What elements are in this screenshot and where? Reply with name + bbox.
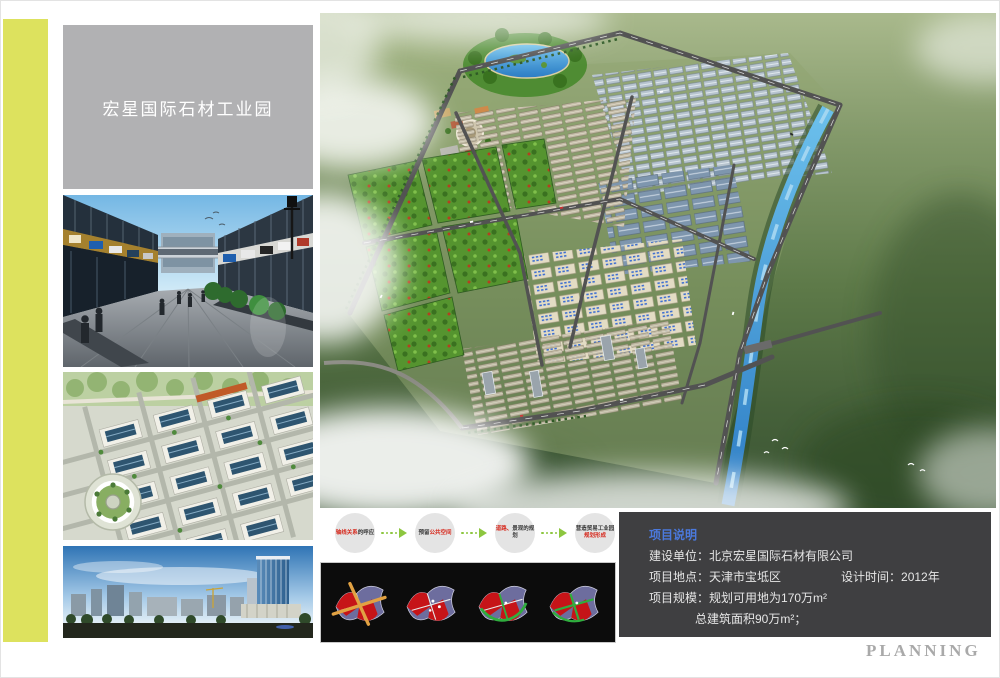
info-row-scale-value: 规划可用地为170万m² bbox=[709, 591, 827, 605]
flow-arrow-1 bbox=[381, 528, 407, 538]
concept-diagram-open-space bbox=[401, 579, 463, 627]
flow-arrow-2 bbox=[461, 528, 487, 538]
info-row-builder-value: 北京宏星国际石材有限公司 bbox=[709, 549, 853, 563]
photo-aerial-campus bbox=[63, 372, 313, 540]
flow-step-3-text-a: 道路、 bbox=[496, 526, 513, 532]
flow-step-2: 预留公共空间 bbox=[415, 513, 455, 553]
accent-stripe bbox=[3, 19, 48, 642]
project-title: 宏星国际石材工业园 bbox=[103, 95, 274, 120]
photo-street-view bbox=[63, 195, 313, 367]
flow-step-4-text-a: 营造贸易工业园 bbox=[576, 526, 615, 533]
concept-diagram-final-plan bbox=[544, 579, 606, 627]
flow-step-4-text-b: 规划形成 bbox=[576, 533, 615, 540]
flow-step-1-text-b: 的呼应 bbox=[358, 530, 375, 536]
info-row-scale-label: 项目规模： bbox=[649, 591, 709, 605]
presentation-board: 宏星国际石材工业园 bbox=[0, 0, 1000, 678]
info-row-location-value: 天津市宝坻区 bbox=[709, 570, 781, 584]
info-row-scale: 项目规模：规划可用地为170万m² bbox=[649, 589, 827, 606]
masterplan-render bbox=[320, 13, 996, 508]
info-row-builder: 建设单位：北京宏星国际石材有限公司 bbox=[649, 547, 853, 564]
info-row-design-time: 设计时间：2012年 bbox=[841, 568, 940, 585]
street-view-render bbox=[63, 195, 313, 367]
concept-diagram-axes bbox=[330, 579, 392, 627]
photo-skyline bbox=[63, 546, 313, 638]
flow-arrow-3 bbox=[541, 528, 567, 538]
info-row-floor-area-value: 总建筑面积90万m²； bbox=[695, 612, 806, 626]
flow-step-4: 营造贸易工业园规划形成 bbox=[575, 513, 615, 553]
concept-diagram-roads-landscape bbox=[473, 579, 535, 627]
aerial-campus-render bbox=[63, 372, 313, 540]
info-row-builder-label: 建设单位： bbox=[649, 549, 709, 563]
info-row-location: 项目地点：天津市宝坻区 bbox=[649, 568, 781, 585]
title-plate: 宏星国际石材工业园 bbox=[63, 25, 313, 189]
info-row-location-label: 项目地点： bbox=[649, 570, 709, 584]
info-row-design-time-label: 设计时间： bbox=[841, 570, 901, 584]
concept-diagrams-panel bbox=[320, 562, 616, 643]
planning-watermark: PLANNING bbox=[866, 641, 981, 661]
info-row-floor-area: 总建筑面积90万m²； bbox=[695, 610, 806, 627]
flow-step-3: 道路、景观的规划 bbox=[495, 513, 535, 553]
flow-step-3-text-b: 景观的规划 bbox=[512, 526, 534, 539]
info-panel: 项目说明 建设单位：北京宏星国际石材有限公司 项目地点：天津市宝坻区 设计时间：… bbox=[619, 512, 991, 637]
flow-step-2-text-b: 公共空间 bbox=[430, 530, 452, 536]
info-row-design-time-value: 2012年 bbox=[901, 570, 940, 584]
flow-step-2-text-a: 预留 bbox=[418, 530, 429, 536]
flow-step-1: 轴线关系的呼应 bbox=[335, 513, 375, 553]
skyline-render bbox=[63, 546, 313, 638]
main-aerial-render bbox=[320, 13, 996, 508]
info-heading: 项目说明 bbox=[649, 526, 697, 543]
flow-step-1-text-a: 轴线关系 bbox=[336, 530, 358, 536]
